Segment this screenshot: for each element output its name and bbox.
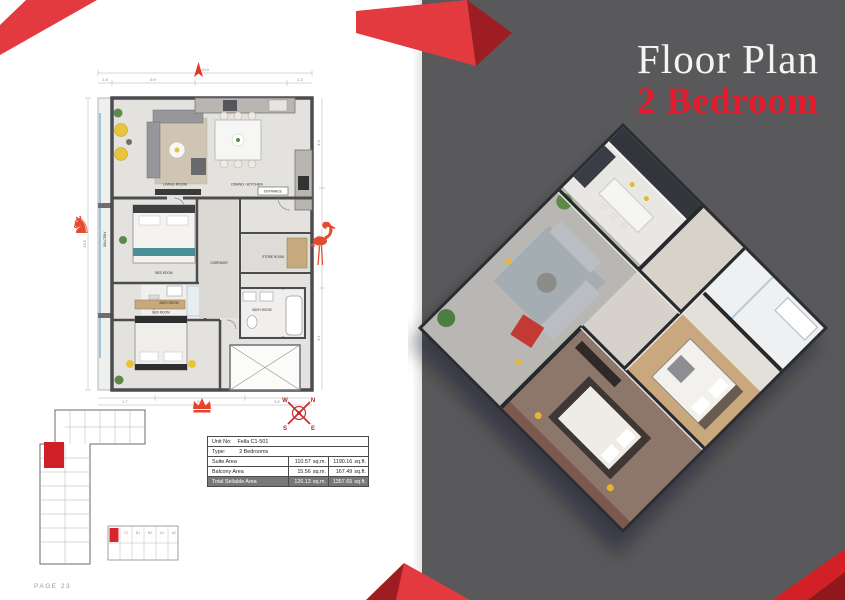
compass-e: E [311,426,315,432]
render-rooms [422,127,824,529]
label-living-room: LIVING ROOM [163,183,187,187]
compass-rose: W N S E [279,393,319,433]
page-number-left: PAGE 23 [34,583,71,590]
svg-text:3.1: 3.1 [316,334,321,340]
flamingo-icon [309,215,337,267]
page-number-right: 24 [797,585,806,592]
total-area-label: Total Sellable Area [208,479,288,485]
suite-area-label: Suite Area [208,459,288,465]
compass-w: W [282,398,288,404]
total-area-sqft: 1357.65sq.ft. [328,477,368,486]
balcony-area-label: Balcony Area [208,469,288,475]
highlighted-unit [44,442,64,468]
horse-logo-icon: ♞ [70,214,92,238]
left-page: 10.0 1.8 6.9 1.3 13.9 4.3 6.5 3.1 1.7 5.… [0,0,422,600]
total-area-sqm: 126.13sq.m. [288,477,328,486]
label-bath-room-1: BATH ROOM [159,301,178,305]
label-store-room: STORE ROOM [262,255,284,259]
svg-text:1.8: 1.8 [102,77,108,82]
building-key-plan: C2 B1 B2 A1 A2 [28,402,193,572]
svg-text:10.0: 10.0 [201,67,210,72]
table-row-type: Type: 2 Bedrooms [208,446,368,456]
svg-text:A1: A1 [160,531,164,535]
svg-text:B1: B1 [136,531,140,535]
page-title: Floor Plan [608,38,845,81]
svg-text:4.3: 4.3 [316,139,321,145]
label-balcony: BALCONY [103,231,107,247]
bathroom-2 [242,290,304,337]
svg-text:A2: A2 [172,531,176,535]
table-row-unit-no: Unit No: Fella C1-501 [208,437,368,446]
table-row-suite-area: Suite Area 110.57sq.m. 1190.16sq.ft. [208,456,368,466]
master-key-strip: C2 B1 B2 A1 A2 [108,526,178,560]
page-subtitle: 2 Bedroom [608,82,845,123]
label-bedroom-master: BED ROOM [155,271,173,275]
compass-s: S [283,426,287,432]
unit-info-table: Unit No: Fella C1-501 Type: 2 Bedrooms S… [207,436,369,487]
floor-plan-2d: 10.0 1.8 6.9 1.3 13.9 4.3 6.5 3.1 1.7 5.… [55,58,345,408]
shaft-void [230,345,300,390]
table-row-total-area: Total Sellable Area 126.13sq.m. 1357.65s… [208,476,368,486]
type-label: Type: [208,449,225,455]
balcony-area-sqm: 15.56sq.m. [288,467,328,476]
svg-text:C2: C2 [124,531,129,535]
suite-area-sqm: 110.57sq.m. [288,457,328,466]
label-entrance: ENTRANCE [264,190,282,194]
label-bath-room-2: BATH ROOM [252,308,271,312]
svg-text:13.9: 13.9 [82,239,87,248]
title-block: Floor Plan 2 Bedroom [608,38,845,123]
floor-plan-3d-render [408,98,842,568]
type-value: 2 Bedrooms [225,449,268,455]
suite-area-sqft: 1190.16sq.ft. [328,457,368,466]
unit-no-label: Unit No: [208,439,231,445]
table-row-balcony-area: Balcony Area 15.56sq.m. 167.49sq.ft. [208,466,368,476]
unit-no-value: Fella C1-501 [231,439,268,445]
svg-text:6.9: 6.9 [150,77,156,82]
brochure-spread: 10.0 1.8 6.9 1.3 13.9 4.3 6.5 3.1 1.7 5.… [0,0,845,600]
crown-icon [190,396,214,414]
label-corridor: CORRIDOR [210,261,228,265]
svg-text:B2: B2 [148,531,152,535]
compass-n: N [311,398,315,404]
label-dining-kitchen: DINING / KITCHEN [231,183,263,187]
balcony-area-sqft: 167.49sq.ft. [328,467,368,476]
svg-text:1.3: 1.3 [297,77,303,82]
label-bed-room-2: BED ROOM [152,311,170,315]
